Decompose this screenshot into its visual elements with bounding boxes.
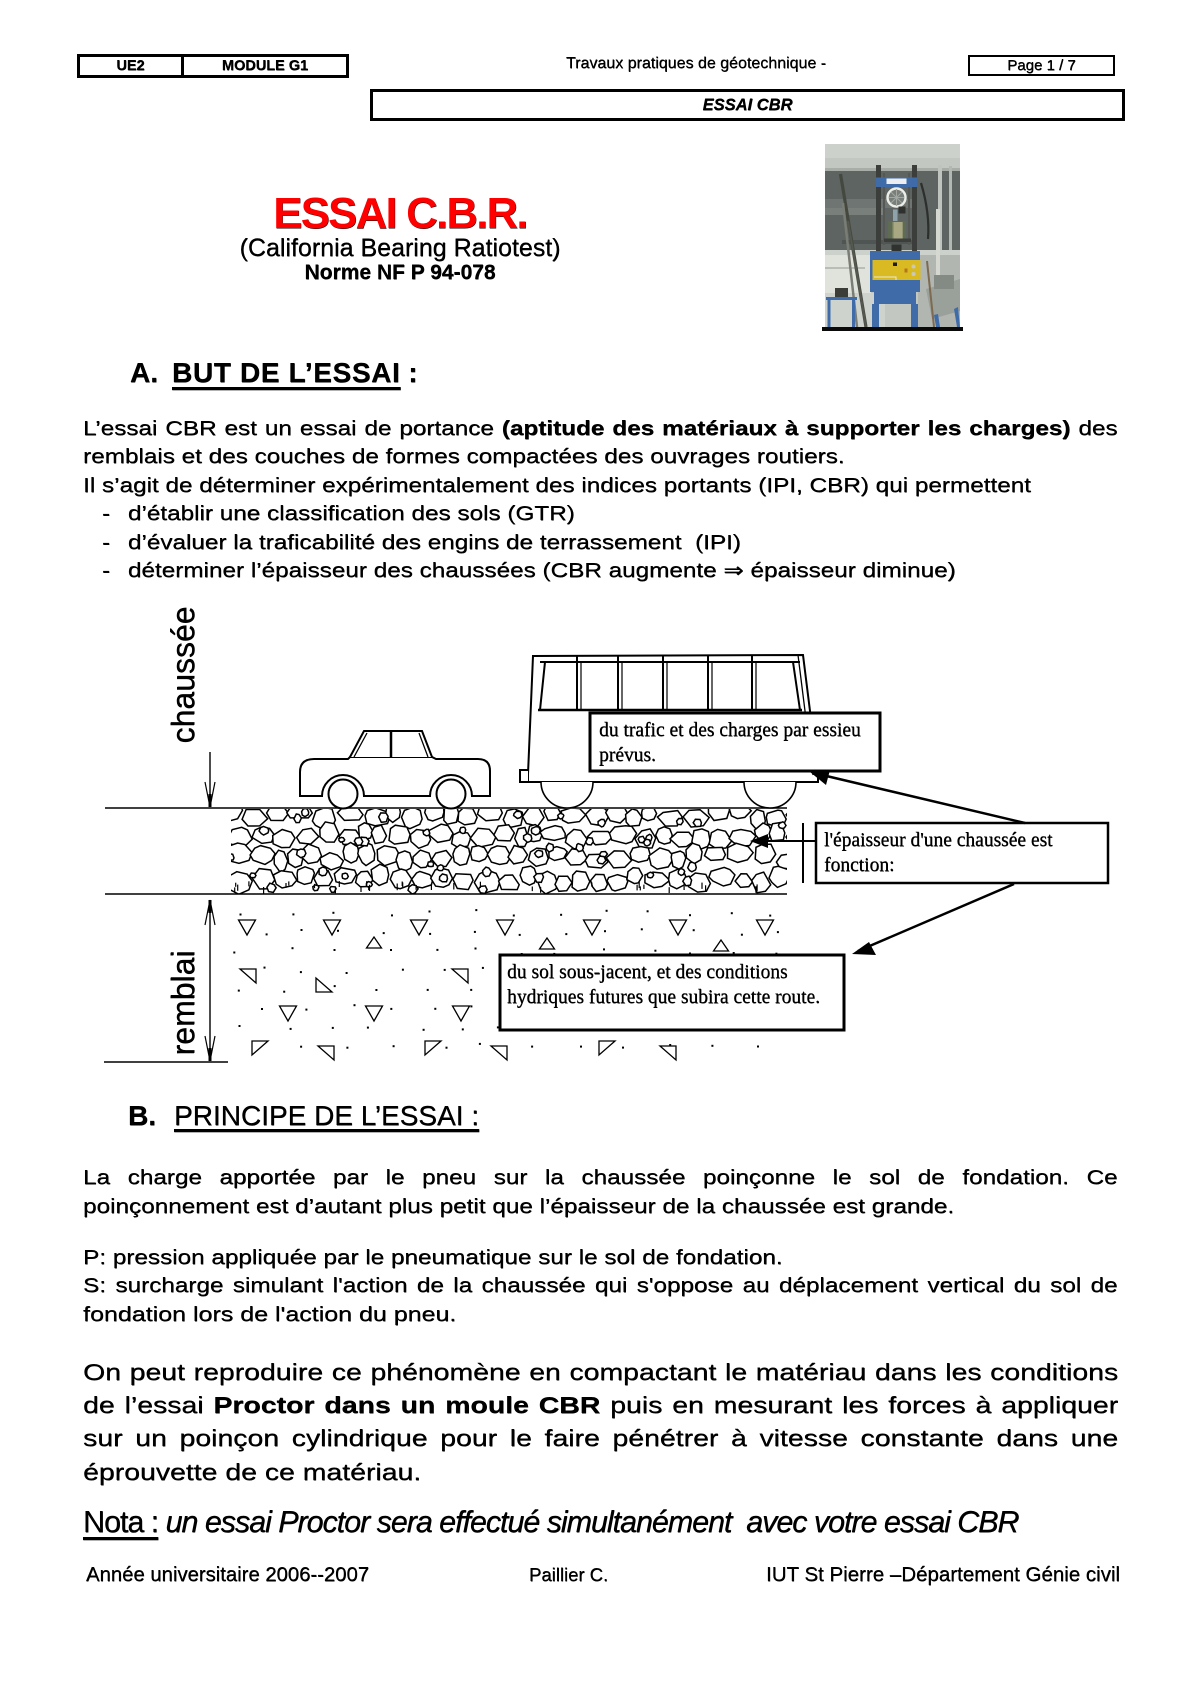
svg-text:du trafic et des charges par e: du trafic et des charges par essieu: [599, 720, 861, 741]
svg-text:du sol sous-jacent, et des con: du sol sous-jacent, et des conditions: [507, 962, 788, 983]
svg-text:fonction:: fonction:: [824, 855, 894, 876]
svg-text:chaussée: chaussée: [165, 607, 201, 744]
svg-text:remblai: remblai: [165, 951, 201, 1056]
svg-text:prévus.: prévus.: [599, 745, 656, 766]
svg-text:l'épaisseur d'une chaussée est: l'épaisseur d'une chaussée est: [824, 830, 1053, 851]
svg-text:hydriques futures que subira c: hydriques futures que subira cette route…: [507, 987, 820, 1008]
